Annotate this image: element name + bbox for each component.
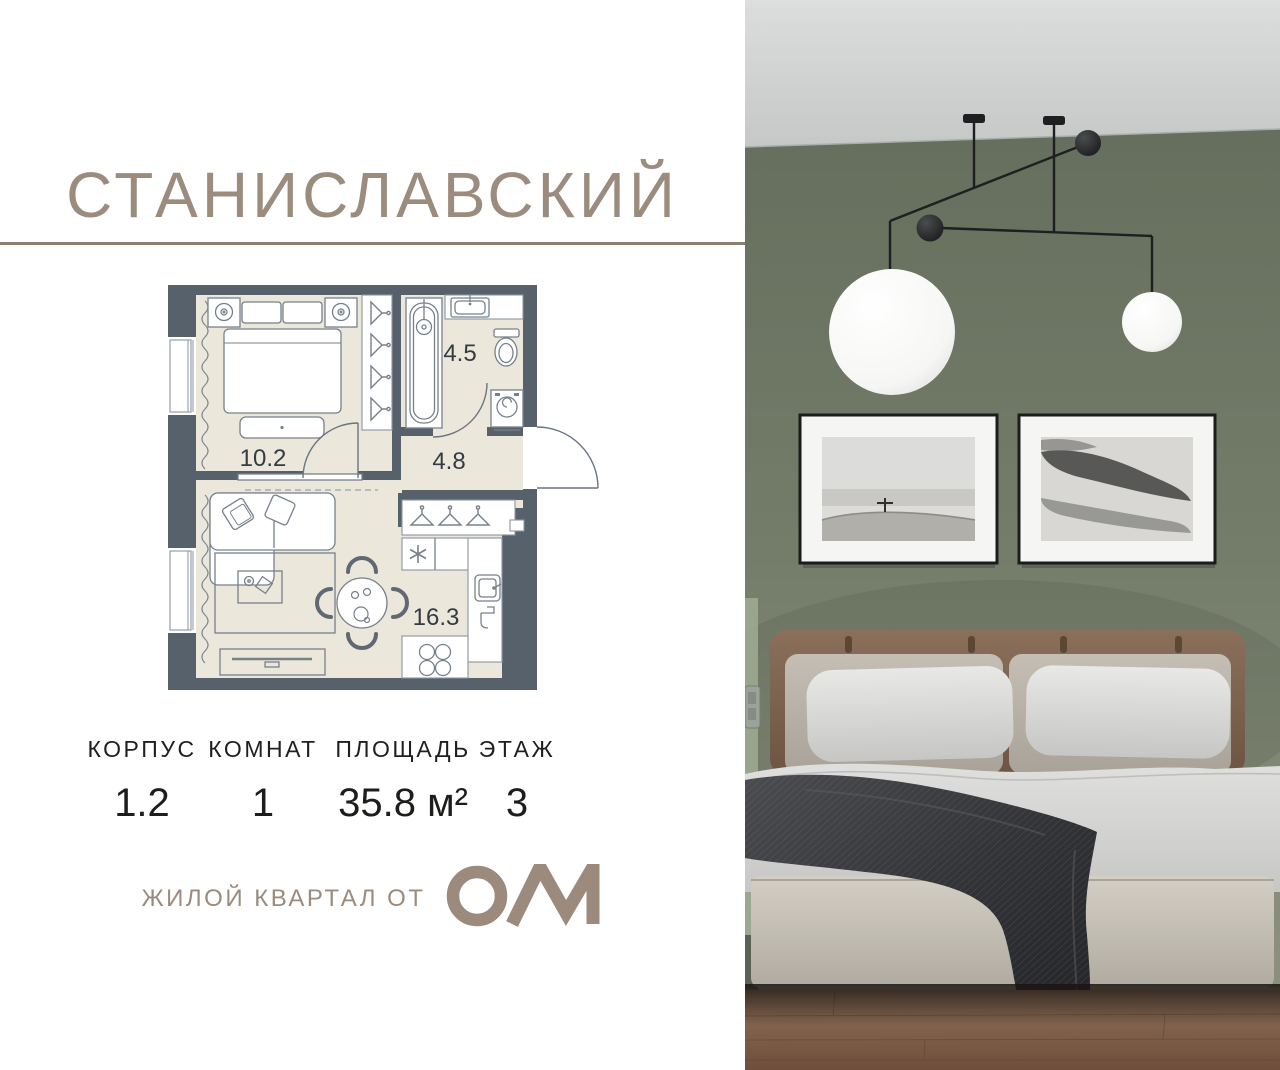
spec-etazh-label: ЭТАЖ	[479, 736, 555, 763]
title-divider	[0, 242, 745, 245]
spec-korpus-label: КОРПУС	[87, 736, 196, 763]
om-logo-icon	[446, 864, 604, 928]
area-living: 16.3	[413, 604, 460, 631]
brand-row: ЖИЛОЙ КВАРТАЛ ОТ ОМ	[0, 858, 745, 934]
picture-frame-left	[800, 415, 997, 568]
spec-ploshchad: ПЛОЩАДЬ 35.8 м²	[335, 736, 470, 826]
bed-shadow	[745, 984, 1280, 1026]
spec-ploshchad-value: 35.8 м²	[335, 781, 470, 826]
spec-komnat-value: 1	[208, 781, 317, 826]
lamp-mount	[963, 114, 985, 123]
spec-korpus-value: 1.2	[87, 781, 196, 826]
bathtub	[406, 298, 442, 428]
floor-plan: 10.2 4.5 4.8 16.3	[150, 281, 602, 693]
pillow-right	[1025, 665, 1231, 759]
info-panel: СТАНИСЛАВСКИЙ	[0, 0, 745, 1070]
lamp-globe-small	[1122, 292, 1182, 352]
washing-machine	[491, 390, 523, 430]
spec-ploshchad-label: ПЛОЩАДЬ	[335, 736, 470, 763]
lamp-globe-large	[829, 269, 955, 395]
spec-etazh-value: 3	[479, 781, 555, 826]
picture-frame-right	[1019, 415, 1215, 568]
toilet	[494, 329, 519, 366]
lamp-mount	[1043, 116, 1065, 125]
spec-etazh: ЭТАЖ 3	[479, 736, 555, 826]
area-bathroom: 4.5	[443, 340, 476, 367]
photo-ceiling	[745, 0, 1280, 147]
spec-komnat: КОМНАТ 1	[208, 736, 317, 826]
pillow-left	[806, 665, 1014, 762]
lamp-black-sphere	[1075, 130, 1101, 156]
brand-tagline: ЖИЛОЙ КВАРТАЛ ОТ	[141, 879, 425, 913]
property-card: СТАНИСЛАВСКИЙ	[0, 0, 1280, 1070]
bedroom-photo	[745, 0, 1280, 1070]
bed	[745, 630, 1280, 1038]
spec-korpus: КОРПУС 1.2	[87, 736, 196, 826]
specs-row: КОРПУС 1.2 КОМНАТ 1 ПЛОЩАДЬ 35.8 м² ЭТАЖ…	[0, 736, 745, 836]
page-title: СТАНИСЛАВСКИЙ	[0, 163, 745, 227]
lamp-black-sphere	[917, 215, 944, 242]
spec-komnat-label: КОМНАТ	[208, 736, 317, 763]
area-bedroom: 10.2	[240, 445, 287, 472]
area-hallway: 4.8	[432, 448, 465, 475]
